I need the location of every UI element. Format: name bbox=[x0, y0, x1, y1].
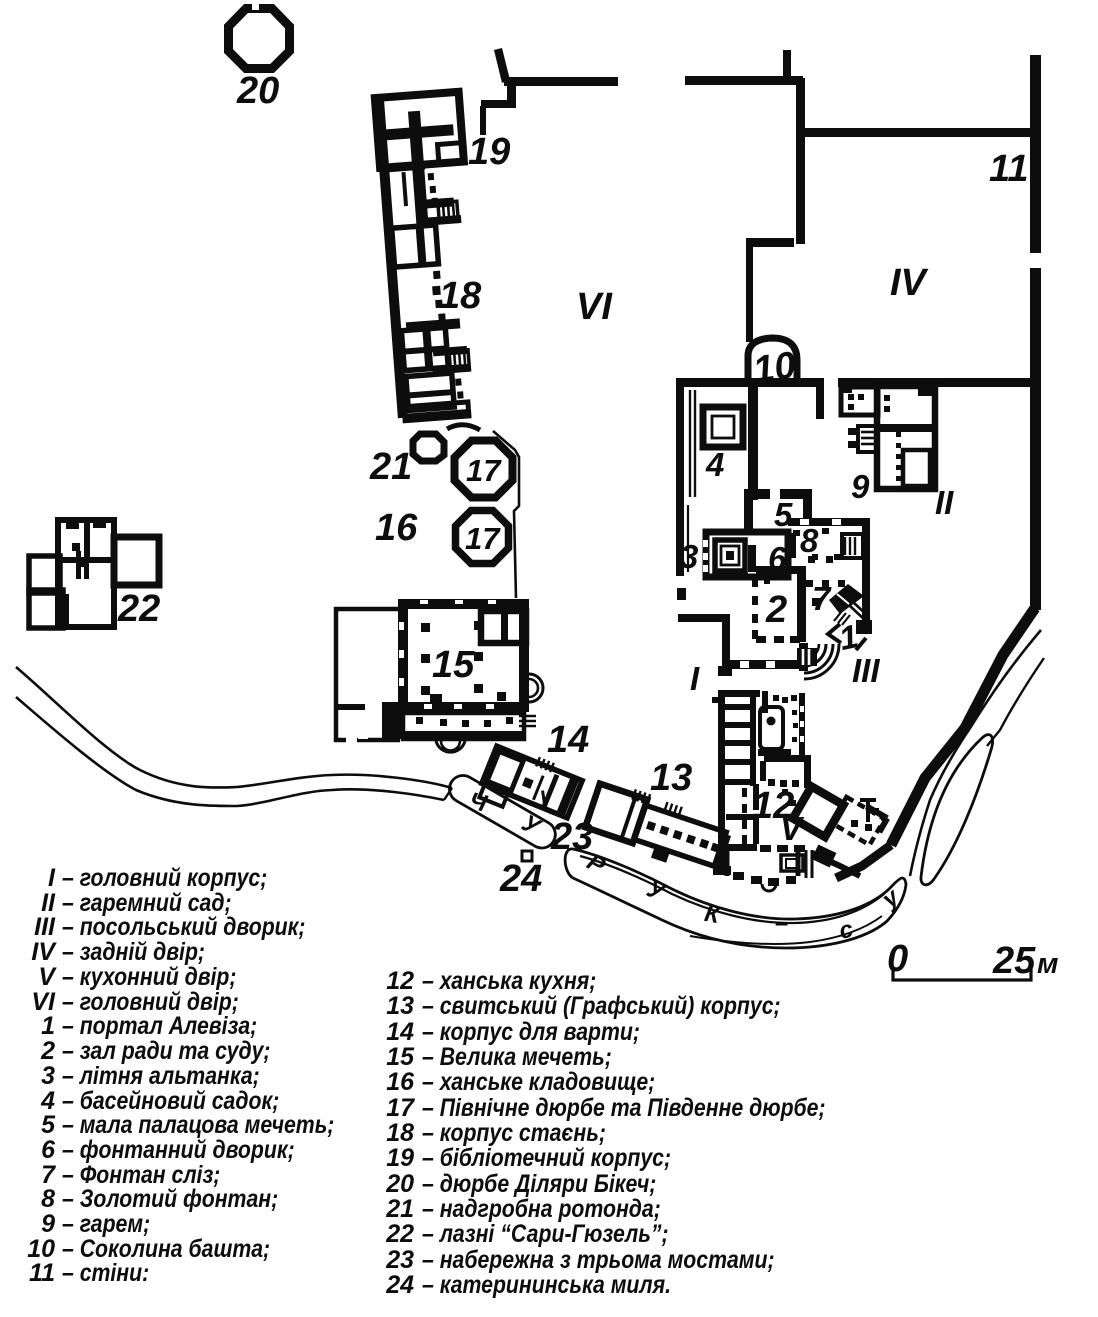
svg-text:– мала палацова мечеть;: – мала палацова мечеть; bbox=[62, 1110, 334, 1138]
svg-text:1: 1 bbox=[41, 1012, 55, 1040]
svg-text:– набережна з трьома мостами;: – набережна з трьома мостами; bbox=[422, 1245, 775, 1273]
svg-text:– фонтанний дворик;: – фонтанний дворик; bbox=[62, 1135, 295, 1163]
svg-text:III: III bbox=[34, 913, 56, 941]
svg-text:0: 0 bbox=[887, 938, 908, 980]
svg-text:I: I bbox=[48, 864, 56, 892]
svg-text:– головний корпус;: – головний корпус; bbox=[62, 863, 267, 891]
svg-text:– літня альтанка;: – літня альтанка; bbox=[62, 1061, 260, 1089]
svg-text:10: 10 bbox=[751, 344, 799, 391]
svg-text:– Північне дюрбе та Південне д: – Північне дюрбе та Південне дюрбе; bbox=[422, 1093, 826, 1121]
svg-text:III: III bbox=[852, 652, 880, 689]
svg-text:– Велика мечеть;: – Велика мечеть; bbox=[422, 1042, 612, 1070]
svg-text:24: 24 bbox=[385, 1271, 414, 1299]
svg-text:– гарем;: – гарем; bbox=[62, 1209, 150, 1237]
svg-text:м: м bbox=[1037, 948, 1058, 980]
svg-text:IV: IV bbox=[890, 262, 929, 304]
svg-text:К: К bbox=[703, 900, 724, 930]
svg-text:– зал ради та суду;: – зал ради та суду; bbox=[62, 1036, 270, 1064]
svg-text:– катерининська миля.: – катерининська миля. bbox=[422, 1270, 671, 1298]
svg-text:5: 5 bbox=[774, 496, 793, 533]
svg-text:13: 13 bbox=[386, 992, 414, 1020]
svg-text:13: 13 bbox=[650, 757, 692, 799]
svg-text:– свитський (Графський) корпус: – свитський (Графський) корпус; bbox=[422, 991, 781, 1019]
svg-text:16: 16 bbox=[375, 507, 418, 549]
svg-text:22: 22 bbox=[117, 588, 160, 630]
svg-text:11: 11 bbox=[989, 148, 1028, 190]
svg-text:8: 8 bbox=[800, 522, 819, 559]
svg-text:с: с bbox=[836, 916, 855, 945]
svg-text:15: 15 bbox=[432, 644, 475, 686]
svg-text:II: II bbox=[935, 484, 954, 521]
svg-text:23: 23 bbox=[385, 1246, 414, 1274]
svg-text:5: 5 bbox=[41, 1111, 56, 1139]
svg-text:20: 20 bbox=[236, 70, 279, 112]
svg-text:15: 15 bbox=[386, 1043, 415, 1071]
svg-text:Ч: Ч bbox=[466, 787, 490, 818]
svg-text:– посольський дворик;: – посольський дворик; bbox=[62, 912, 305, 940]
svg-text:17: 17 bbox=[386, 1094, 415, 1122]
svg-text:– дюрбе Діляри Бікеч;: – дюрбе Діляри Бікеч; bbox=[422, 1169, 656, 1197]
svg-text:V: V bbox=[780, 810, 805, 847]
svg-text:IV: IV bbox=[31, 938, 57, 966]
svg-text:14: 14 bbox=[386, 1018, 414, 1046]
svg-text:– ханське кладовище;: – ханське кладовище; bbox=[422, 1067, 655, 1095]
svg-text:– кухонний двір;: – кухонний двір; bbox=[62, 962, 236, 990]
svg-text:4: 4 bbox=[705, 446, 724, 483]
svg-text:8: 8 bbox=[41, 1185, 55, 1213]
svg-text:– бібліотечний корпус;: – бібліотечний корпус; bbox=[422, 1143, 671, 1171]
svg-text:2: 2 bbox=[765, 589, 787, 631]
svg-text:3: 3 bbox=[41, 1062, 55, 1090]
svg-text:– лазні “Сари-Гюзель”;: – лазні “Сари-Гюзель”; bbox=[422, 1219, 669, 1247]
svg-text:– корпус стаєнь;: – корпус стаєнь; bbox=[422, 1118, 606, 1146]
svg-text:19: 19 bbox=[468, 131, 510, 173]
svg-text:17: 17 bbox=[466, 453, 502, 488]
svg-text:17: 17 bbox=[465, 521, 501, 556]
svg-text:21: 21 bbox=[369, 446, 412, 488]
svg-text:– ханська кухня;: – ханська кухня; bbox=[422, 966, 596, 994]
svg-text:6: 6 bbox=[41, 1136, 56, 1164]
svg-text:21: 21 bbox=[385, 1195, 414, 1223]
svg-text:16: 16 bbox=[386, 1068, 415, 1096]
svg-text:–: – bbox=[775, 910, 788, 937]
svg-text:25: 25 bbox=[992, 940, 1036, 982]
svg-text:7: 7 bbox=[812, 580, 832, 617]
svg-text:– Золотий фонтан;: – Золотий фонтан; bbox=[62, 1184, 278, 1212]
svg-text:I: I bbox=[690, 660, 700, 697]
svg-text:VI: VI bbox=[576, 286, 613, 328]
svg-text:11: 11 bbox=[29, 1259, 55, 1287]
svg-text:9: 9 bbox=[41, 1210, 55, 1238]
svg-text:6: 6 bbox=[768, 540, 787, 577]
svg-text:– корпус для варти;: – корпус для варти; bbox=[422, 1017, 640, 1045]
svg-text:14: 14 bbox=[547, 719, 589, 761]
svg-text:– стіни:: – стіни: bbox=[62, 1258, 149, 1286]
svg-text:18: 18 bbox=[439, 275, 482, 317]
svg-text:20: 20 bbox=[385, 1170, 414, 1198]
svg-text:18: 18 bbox=[386, 1119, 414, 1147]
svg-text:24: 24 bbox=[499, 858, 542, 900]
svg-text:V: V bbox=[38, 963, 57, 991]
svg-text:– надгробна ротонда;: – надгробна ротонда; bbox=[422, 1194, 661, 1222]
svg-text:– задній двір;: – задній двір; bbox=[62, 937, 205, 965]
svg-text:19: 19 bbox=[386, 1144, 414, 1172]
svg-text:– портал Алевіза;: – портал Алевіза; bbox=[62, 1011, 257, 1039]
svg-text:12: 12 bbox=[386, 967, 414, 995]
svg-text:3: 3 bbox=[680, 538, 698, 575]
svg-text:23: 23 bbox=[550, 816, 593, 858]
svg-text:22: 22 bbox=[385, 1220, 414, 1248]
svg-text:2: 2 bbox=[40, 1037, 55, 1065]
svg-text:9: 9 bbox=[851, 468, 870, 505]
